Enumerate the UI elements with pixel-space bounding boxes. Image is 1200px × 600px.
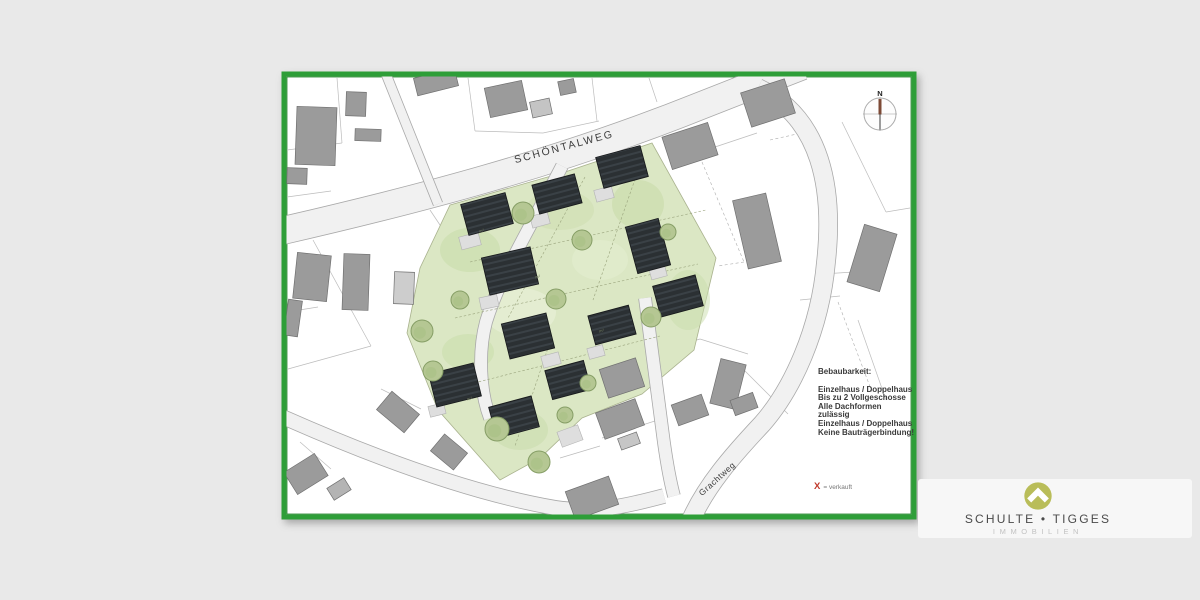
legend: Bebaubarkeit: Einzelhaus / Doppelhaus Bi… xyxy=(818,368,914,437)
tree-shade xyxy=(549,295,560,306)
tree-shade xyxy=(559,412,568,421)
existing-building xyxy=(558,78,577,95)
existing-building xyxy=(355,129,381,142)
brand-footer: SCHULTE • TIGGES IMMOBILIEN xyxy=(918,479,1192,538)
legend-line: Keine Bauträgerbindung! xyxy=(818,429,914,438)
existing-building xyxy=(295,106,337,165)
compass-needle-icon xyxy=(879,99,882,115)
tree-shade xyxy=(515,209,527,221)
brand-name: SCHULTE • TIGGES xyxy=(965,512,1111,526)
existing-building xyxy=(287,168,308,185)
existing-building xyxy=(393,272,414,305)
legend-title: Bebaubarkeit: xyxy=(818,368,914,377)
brand-logo-icon xyxy=(1023,481,1053,511)
sold-marker-label: = verkauft xyxy=(823,484,852,491)
existing-building xyxy=(346,92,367,117)
tree-shade xyxy=(531,458,543,470)
tree-shade xyxy=(582,380,591,389)
site-plan-screenshot: m²m²m²m² SCHÖNTALWEG Grachtweg N Bebauba… xyxy=(0,0,1200,600)
brand-subtitle: IMMOBILIEN xyxy=(993,527,1083,536)
tree-shade xyxy=(488,424,501,437)
tree-shade xyxy=(453,296,463,306)
tree-shade xyxy=(426,367,437,378)
sold-marker: X = verkauft xyxy=(814,481,852,492)
tree-shade xyxy=(414,327,426,339)
compass-north-label: N xyxy=(877,89,882,98)
existing-building xyxy=(342,254,370,311)
legend-line: Alle Dachformen zulässig xyxy=(818,403,914,420)
sold-x-symbol: X xyxy=(814,481,820,492)
tree-shade xyxy=(644,313,655,324)
tree-shade xyxy=(662,229,671,238)
existing-building xyxy=(293,252,332,301)
logo-circle xyxy=(1024,482,1051,509)
tree-shade xyxy=(575,236,586,247)
